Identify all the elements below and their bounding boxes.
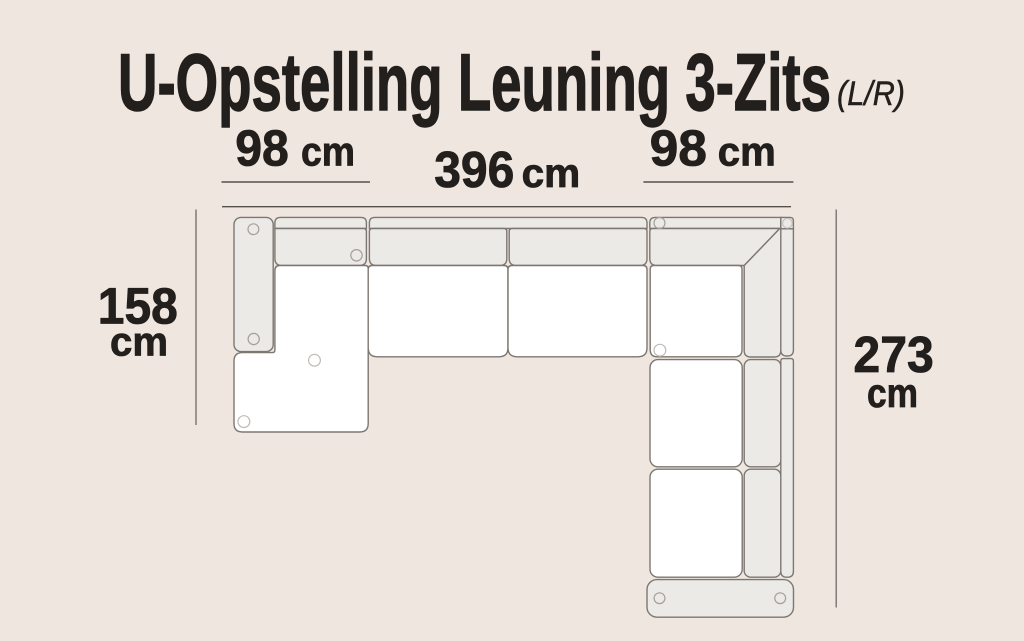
svg-text:(L/R): (L/R) bbox=[837, 75, 905, 113]
svg-text:U-Opstelling Leuning 3-Zits: U-Opstelling Leuning 3-Zits bbox=[118, 38, 831, 128]
svg-text:cm: cm bbox=[867, 370, 918, 416]
svg-text:98: 98 bbox=[235, 119, 289, 176]
svg-text:cm: cm bbox=[718, 128, 776, 174]
svg-text:98: 98 bbox=[650, 119, 707, 176]
svg-text:cm: cm bbox=[522, 150, 581, 196]
svg-text:cm: cm bbox=[301, 128, 355, 174]
svg-text:396: 396 bbox=[434, 141, 514, 198]
svg-text:cm: cm bbox=[110, 319, 168, 365]
